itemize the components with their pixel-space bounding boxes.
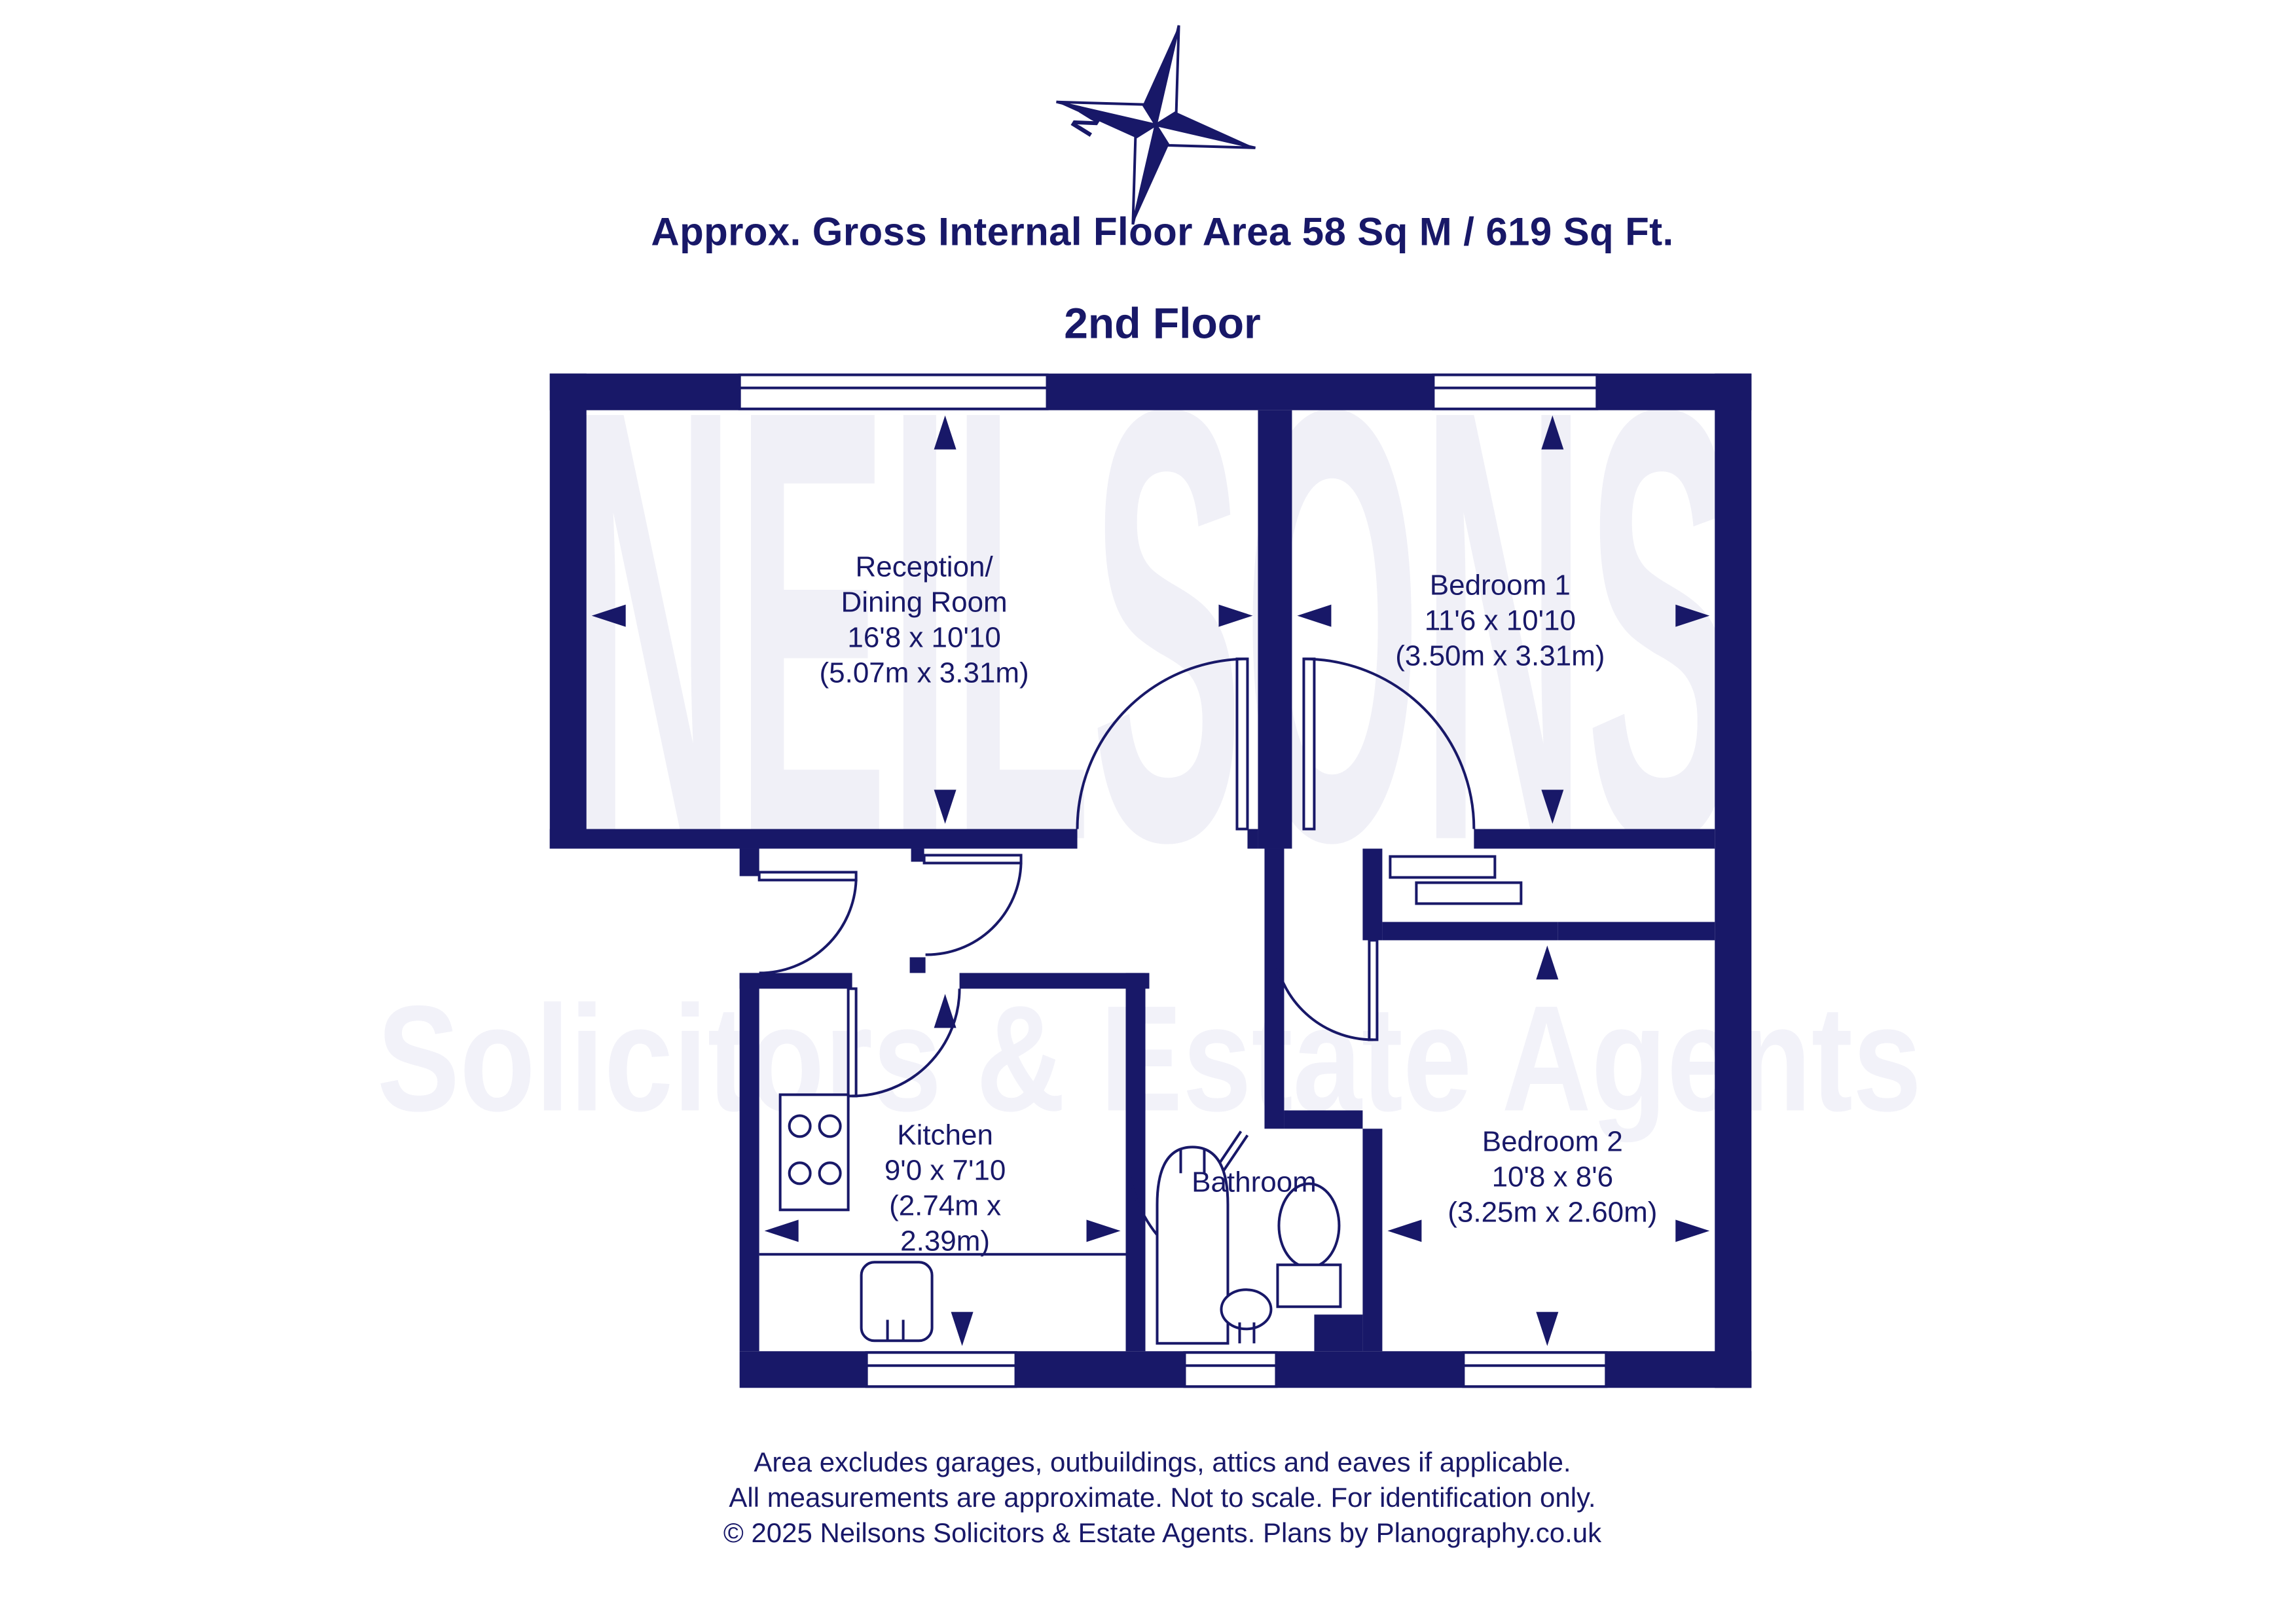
watermark-solicitors: Solicitors & Estate Agents xyxy=(377,974,1922,1142)
wall-kitchen-bathroom-divider xyxy=(1126,973,1146,1351)
reception-name-line1: Reception/ xyxy=(855,551,993,583)
kitchen-dims-metric-2: 2.39m) xyxy=(900,1225,990,1257)
reception-name-line2: Dining Room xyxy=(841,586,1008,619)
wall-bedroom2-top xyxy=(1558,922,1715,940)
wall-vestibule-left-stub xyxy=(740,848,759,876)
kitchen-name: Kitchen xyxy=(897,1119,993,1151)
footer-line3: © 2025 Neilsons Solicitors & Estate Agen… xyxy=(723,1517,1602,1548)
footer-line1: Area excludes garages, outbuildings, att… xyxy=(754,1447,1571,1477)
wall-cupboard-left xyxy=(1362,848,1382,940)
hob-icon xyxy=(780,1094,848,1210)
bathroom-name: Bathroom xyxy=(1192,1166,1317,1198)
kitchen-dims-imperial: 9'0 x 7'10 xyxy=(884,1154,1006,1186)
toilet-icon xyxy=(1277,1183,1340,1307)
watermark: NEILSONS Solicitors & Estate Agents xyxy=(377,281,1922,1142)
footer-line2: All measurements are approximate. Not to… xyxy=(729,1482,1595,1513)
cupboard-shelf-2 xyxy=(1416,882,1521,903)
floor-title: 2nd Floor xyxy=(1064,299,1261,348)
wall-reception-bottom xyxy=(550,829,1078,848)
bedroom2-name: Bedroom 2 xyxy=(1482,1125,1623,1157)
window-bathroom xyxy=(1184,1352,1276,1386)
wall-reception-bottom-stub xyxy=(1247,829,1258,848)
wall-left xyxy=(550,374,587,849)
window-reception xyxy=(740,375,1048,409)
bedroom2-dims-imperial: 10'8 x 8'6 xyxy=(1492,1161,1613,1193)
floorplan-page: NEILSONS Solicitors & Estate Agents N Ap… xyxy=(0,0,2296,1624)
bedroom1-dims-metric: (3.50m x 3.31m) xyxy=(1395,640,1605,672)
wall-bedroom1-bottom xyxy=(1474,829,1715,848)
reception-dims-imperial: 16'8 x 10'10 xyxy=(847,622,1000,654)
footer: Area excludes garages, outbuildings, att… xyxy=(723,1447,1602,1548)
page-title: Approx. Gross Internal Floor Area 58 Sq … xyxy=(651,210,1673,254)
cupboard-shelf-1 xyxy=(1390,856,1495,877)
wall-corridor-right xyxy=(1264,848,1284,1128)
wall-bathroom-right xyxy=(1362,1128,1382,1351)
bedroom1-name: Bedroom 1 xyxy=(1430,569,1571,602)
window-kitchen xyxy=(867,1352,1016,1386)
wall-right xyxy=(1715,374,1751,1388)
wall-cupboard-bottom xyxy=(1382,922,1558,940)
wall-bathroom-step xyxy=(1314,1314,1362,1351)
wall-kitchen-left xyxy=(740,973,759,1351)
bedroom2-dims-metric: (3.25m x 2.60m) xyxy=(1448,1196,1657,1228)
bedroom1-dims-imperial: 11'6 x 10'10 xyxy=(1425,605,1576,637)
wall-divider-reception-bedroom1 xyxy=(1258,410,1292,849)
reception-dims-metric: (5.07m x 3.31m) xyxy=(820,657,1029,689)
wall-kitchen-top-left xyxy=(740,973,852,988)
wall-bathroom-top-right xyxy=(1284,1110,1362,1128)
wall-vestibule-partition-stub-bottom xyxy=(910,957,926,973)
window-bedroom1 xyxy=(1433,375,1597,409)
wall-kitchen-top-right xyxy=(960,973,1150,988)
wall-vestibule-partition-stub-top xyxy=(911,848,924,861)
kitchen-dims-metric-1: (2.74m x xyxy=(889,1189,1001,1221)
window-bedroom2 xyxy=(1463,1352,1606,1386)
kitchen-sink-icon xyxy=(862,1262,932,1341)
